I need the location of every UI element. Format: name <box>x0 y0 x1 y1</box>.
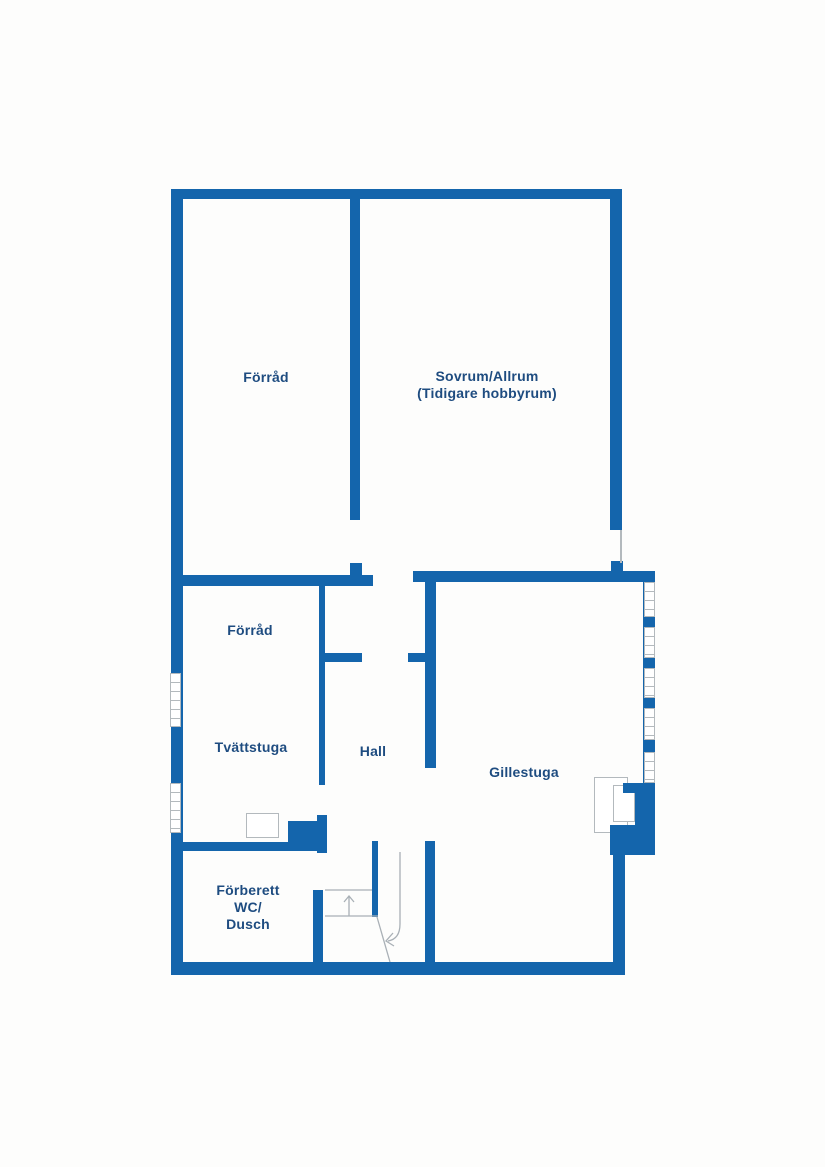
room-label-tvattstuga: Tvättstuga <box>215 739 288 756</box>
room-label-gillestuga: Gillestuga <box>489 764 559 781</box>
room-label-forrad-upper: Förråd <box>243 369 289 386</box>
room-label-text: (Tidigare hobbyrum) <box>417 385 557 402</box>
stair-down-arrow-icon <box>388 852 400 941</box>
room-label-forrad-lower: Förråd <box>227 622 273 639</box>
room-label-text: Hall <box>360 743 386 759</box>
room-label-text: Förberett <box>216 882 279 899</box>
plan-graphics <box>0 0 825 1167</box>
room-label-text: WC/ <box>216 899 279 916</box>
room-label-text: Tvättstuga <box>215 739 288 755</box>
room-label-sovrum: Sovrum/Allrum (Tidigare hobbyrum) <box>417 368 557 402</box>
room-label-wc: Förberett WC/ Dusch <box>216 882 279 933</box>
staircase <box>325 852 400 962</box>
room-label-text: Sovrum/Allrum <box>417 368 557 385</box>
room-label-text: Dusch <box>216 916 279 933</box>
room-label-text: Gillestuga <box>489 764 559 780</box>
room-label-text: Förråd <box>243 369 289 385</box>
room-label-hall: Hall <box>360 743 386 760</box>
floor-plan: Förråd Sovrum/Allrum (Tidigare hobbyrum)… <box>0 0 825 1167</box>
room-label-text: Förråd <box>227 622 273 638</box>
chimney-mass <box>610 783 655 855</box>
